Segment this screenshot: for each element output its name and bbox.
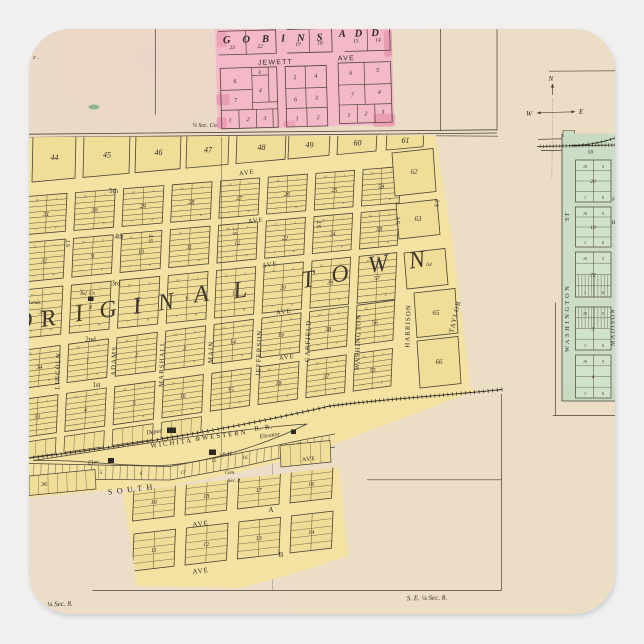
svg-text:12: 12: [75, 394, 79, 398]
svg-text:13: 13: [256, 536, 262, 542]
svg-text:12: 12: [365, 307, 369, 311]
svg-text:59: 59: [378, 184, 384, 190]
svg-text:10: 10: [138, 249, 144, 255]
svg-text:56: 56: [372, 321, 378, 327]
svg-text:38: 38: [324, 327, 331, 333]
svg-text:Cem.: Cem.: [225, 471, 235, 476]
svg-text:10: 10: [583, 164, 587, 169]
svg-text:25: 25: [331, 188, 337, 194]
svg-text:12: 12: [276, 179, 280, 183]
svg-text:4th: 4th: [115, 233, 124, 241]
svg-text:12: 12: [35, 198, 39, 202]
svg-text:33: 33: [33, 414, 40, 420]
svg-text:1: 1: [86, 359, 89, 365]
svg-text:24: 24: [330, 230, 336, 237]
svg-text:14: 14: [308, 529, 314, 536]
svg-text:8: 8: [89, 305, 92, 311]
svg-text:10: 10: [583, 311, 587, 316]
svg-text:5: 5: [602, 359, 604, 364]
svg-text:12: 12: [222, 326, 226, 330]
svg-text:A: A: [268, 506, 273, 514]
svg-text:1: 1: [584, 391, 586, 396]
svg-text:3: 3: [591, 327, 595, 333]
svg-text:17: 17: [181, 471, 187, 476]
svg-text:1: 1: [584, 343, 586, 348]
svg-text:12: 12: [125, 339, 129, 343]
svg-text:10: 10: [583, 256, 587, 261]
svg-text:5: 5: [602, 311, 604, 316]
svg-text:Lands.: Lands.: [27, 301, 41, 306]
svg-text:S. E. ¼ Sec. 8.: S. E. ¼ Sec. 8.: [407, 594, 448, 603]
svg-text:12: 12: [268, 368, 272, 372]
svg-text:12: 12: [176, 278, 180, 282]
svg-text:ST: ST: [564, 212, 571, 221]
svg-text:45: 45: [103, 151, 111, 160]
svg-text:65: 65: [433, 309, 441, 317]
svg-text:ADAMS: ADAMS: [110, 346, 118, 376]
svg-text:10: 10: [583, 359, 587, 364]
svg-text:2nd: 2nd: [85, 336, 96, 344]
svg-text:Sec. 8: Sec. 8: [228, 479, 240, 484]
svg-text:12: 12: [179, 231, 183, 235]
svg-text:Ref. Ch.: Ref. Ch.: [79, 292, 96, 297]
svg-text:12: 12: [227, 227, 231, 231]
svg-text:E: E: [578, 108, 584, 116]
svg-text:4: 4: [314, 73, 317, 80]
svg-text:6: 6: [602, 195, 604, 200]
svg-text:2: 2: [135, 352, 138, 358]
svg-text:1: 1: [229, 118, 232, 124]
svg-text:1: 1: [347, 113, 350, 119]
svg-text:G: G: [98, 296, 119, 324]
svg-text:12: 12: [274, 222, 278, 226]
svg-text:5: 5: [602, 256, 604, 261]
svg-text:31: 31: [42, 212, 49, 218]
svg-text:F: F: [612, 198, 615, 203]
svg-text:9: 9: [91, 254, 94, 260]
svg-text:2: 2: [316, 115, 319, 121]
svg-text:55: 55: [370, 368, 376, 374]
svg-text:1: 1: [584, 290, 586, 295]
svg-text:29: 29: [140, 204, 146, 210]
svg-text:3: 3: [380, 110, 384, 116]
svg-text:ST: ST: [65, 238, 72, 247]
svg-text:50: 50: [588, 150, 594, 156]
svg-text:12: 12: [130, 236, 134, 240]
svg-text:O: O: [330, 260, 351, 288]
svg-text:ST: ST: [433, 198, 441, 208]
svg-text:19: 19: [151, 500, 157, 506]
svg-text:60: 60: [354, 138, 362, 147]
svg-text:12: 12: [371, 171, 375, 175]
svg-text:16: 16: [243, 456, 249, 461]
svg-text:5: 5: [376, 68, 379, 74]
svg-text:12: 12: [369, 214, 373, 218]
svg-text:¼ Sec. Cor.: ¼ Sec. Cor.: [192, 123, 220, 129]
svg-text:12: 12: [132, 190, 136, 194]
svg-text:12: 12: [128, 283, 132, 287]
svg-text:3rd: 3rd: [111, 280, 121, 288]
svg-text:22: 22: [282, 236, 288, 242]
svg-text:ST: ST: [232, 226, 239, 235]
svg-text:19: 19: [590, 225, 596, 231]
svg-text:4: 4: [592, 374, 595, 381]
svg-text:63: 63: [415, 215, 423, 223]
svg-text:12: 12: [272, 269, 276, 273]
svg-text:3: 3: [182, 346, 186, 352]
svg-text:72: 72: [590, 273, 596, 279]
svg-text:12: 12: [174, 332, 178, 336]
svg-text:15: 15: [212, 459, 218, 464]
svg-text:2: 2: [364, 111, 367, 117]
svg-text:17: 17: [256, 488, 263, 494]
svg-text:62: 62: [411, 168, 419, 176]
svg-text:6: 6: [602, 240, 604, 245]
svg-text:12: 12: [324, 175, 328, 179]
svg-text:AVE: AVE: [338, 55, 355, 62]
svg-text:N: N: [548, 75, 554, 83]
svg-text:49: 49: [306, 141, 314, 150]
svg-text:14: 14: [230, 339, 236, 346]
svg-text:3: 3: [314, 96, 318, 102]
svg-text:26: 26: [284, 192, 290, 198]
svg-text:11: 11: [151, 548, 157, 554]
svg-text:15: 15: [228, 388, 234, 394]
svg-text:12: 12: [224, 273, 228, 277]
svg-text:1: 1: [584, 195, 586, 200]
svg-text:12: 12: [203, 542, 209, 548]
svg-text:47: 47: [204, 146, 213, 155]
svg-text:6: 6: [602, 343, 604, 348]
svg-text:12: 12: [82, 240, 86, 244]
svg-text:4: 4: [378, 89, 381, 96]
svg-text:1: 1: [296, 116, 299, 122]
svg-text:16: 16: [308, 482, 314, 488]
svg-text:MAIN: MAIN: [208, 341, 216, 364]
svg-text:6: 6: [294, 97, 297, 103]
svg-text:12: 12: [33, 244, 37, 248]
svg-text:6: 6: [233, 79, 236, 85]
svg-text:18: 18: [203, 494, 209, 500]
svg-text:27: 27: [236, 196, 243, 202]
svg-text:ST: ST: [148, 233, 155, 242]
svg-text:61: 61: [402, 136, 410, 145]
svg-text:12: 12: [84, 194, 88, 198]
svg-text:10: 10: [583, 211, 587, 216]
svg-text:4: 4: [84, 407, 87, 414]
svg-text:12: 12: [318, 313, 322, 317]
svg-text:E: E: [257, 70, 261, 75]
svg-text:GARFIELD: GARFIELD: [304, 320, 312, 363]
svg-text:5: 5: [602, 211, 604, 216]
svg-text:64: 64: [426, 261, 432, 268]
svg-text:6: 6: [602, 391, 604, 396]
svg-text:46: 46: [155, 148, 163, 157]
svg-text:3: 3: [262, 116, 266, 122]
svg-text:12: 12: [270, 319, 274, 323]
svg-text:¼ Sec. 8.: ¼ Sec. 8.: [47, 600, 73, 609]
svg-text:WASHINGTON: WASHINGTON: [564, 284, 571, 352]
svg-text:44: 44: [51, 153, 59, 162]
svg-text:4: 4: [259, 87, 262, 94]
svg-text:20: 20: [590, 179, 596, 185]
svg-text:LINCOLN: LINCOLN: [54, 352, 62, 390]
svg-text:12: 12: [362, 355, 366, 359]
svg-text:6: 6: [186, 295, 189, 301]
svg-text:5: 5: [133, 401, 136, 407]
svg-text:48: 48: [258, 143, 266, 152]
svg-text:37: 37: [322, 374, 330, 380]
svg-text:5: 5: [293, 75, 296, 81]
svg-text:6: 6: [602, 290, 604, 295]
svg-text:12: 12: [31, 293, 35, 297]
svg-text:36: 36: [40, 482, 47, 488]
svg-text:12: 12: [320, 264, 324, 268]
svg-text:19: 19: [278, 333, 284, 339]
svg-text:1st: 1st: [92, 381, 100, 389]
svg-text:18: 18: [276, 381, 282, 387]
svg-text:6: 6: [349, 71, 352, 77]
svg-text:66: 66: [436, 358, 444, 366]
svg-text:1: 1: [584, 240, 586, 245]
svg-text:B: B: [279, 551, 284, 559]
svg-text:5th: 5th: [109, 187, 118, 195]
svg-text:58: 58: [376, 227, 382, 233]
svg-text:34: 34: [35, 364, 42, 371]
svg-text:28: 28: [188, 200, 194, 206]
svg-text:20: 20: [280, 286, 286, 292]
svg-text:12: 12: [172, 381, 176, 385]
svg-text:30: 30: [91, 208, 98, 214]
svg-text:2: 2: [247, 117, 250, 123]
svg-text:12: 12: [77, 345, 81, 349]
svg-text:ADD: ADD: [338, 28, 388, 40]
svg-text:32: 32: [40, 259, 47, 265]
svg-text:ST: ST: [395, 215, 402, 224]
svg-text:12: 12: [234, 240, 240, 246]
svg-text:5: 5: [602, 164, 604, 169]
svg-text:c .: c .: [33, 55, 39, 61]
svg-text:12: 12: [315, 361, 319, 365]
svg-text:12: 12: [229, 182, 233, 186]
svg-text:ST: ST: [316, 219, 323, 228]
svg-text:JEWETT: JEWETT: [258, 59, 293, 67]
svg-text:16: 16: [180, 394, 186, 400]
svg-text:11: 11: [187, 245, 193, 251]
svg-text:12: 12: [123, 388, 127, 392]
svg-text:12: 12: [181, 186, 185, 190]
